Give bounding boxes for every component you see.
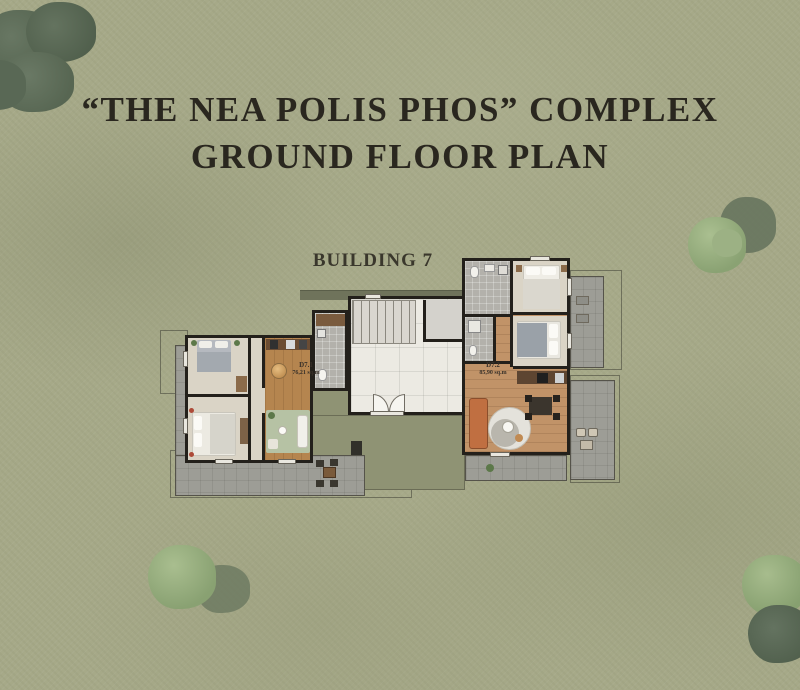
nightstand <box>561 265 567 272</box>
entry-path <box>312 388 348 418</box>
window <box>183 351 188 367</box>
toilet <box>470 266 479 278</box>
chair <box>525 395 532 402</box>
chair <box>553 395 560 402</box>
blanket <box>210 414 235 454</box>
shower <box>468 320 481 333</box>
terrace-bottom-right <box>465 455 567 481</box>
appliance-oven <box>270 340 278 349</box>
outdoor-chair <box>316 460 324 467</box>
window <box>567 333 572 349</box>
coffee-table <box>502 421 514 433</box>
window <box>365 294 381 299</box>
nightstand <box>516 265 522 272</box>
sink <box>484 264 495 272</box>
floor-plan: D7.1 76,21 sq.m <box>160 248 652 502</box>
outdoor-table <box>580 440 593 450</box>
tree-bottom-left <box>140 533 255 618</box>
outdoor-chair <box>576 428 586 437</box>
pillow <box>526 267 540 275</box>
staircase <box>352 300 416 344</box>
armchair <box>268 439 278 449</box>
page-title-line1: “THE NEA POLIS PHOS” COMPLEX <box>0 86 800 133</box>
page-title-line2: GROUND FLOOR PLAN <box>0 133 800 180</box>
plant <box>486 464 494 472</box>
unit-d72-label: D7.2 85,90 sq.m <box>470 361 516 377</box>
sink <box>286 340 295 349</box>
stool <box>515 434 523 442</box>
cooktop <box>537 373 548 383</box>
outdoor-chair <box>330 480 338 487</box>
unit-id: D7.2 <box>470 361 516 370</box>
plant <box>191 340 197 346</box>
lamp <box>189 408 194 413</box>
pillow <box>194 433 202 447</box>
coffee-table <box>278 426 287 435</box>
unit-area: 76,21 sq.m <box>283 370 329 378</box>
tree-canopy <box>148 545 216 609</box>
outdoor-table <box>323 467 336 478</box>
pillow <box>549 341 558 355</box>
terrace-unit <box>576 296 589 305</box>
pillow <box>199 341 212 348</box>
appliance-fridge <box>299 340 307 349</box>
window <box>567 278 572 296</box>
chair <box>553 413 560 420</box>
unit-d72 <box>462 258 570 455</box>
lamp <box>189 452 194 457</box>
unit-d71-label: D7.1 76,21 sq.m <box>283 361 329 377</box>
unit-area: 85,90 sq.m <box>470 370 516 378</box>
blanket <box>523 279 560 309</box>
pillow <box>194 416 202 430</box>
sink <box>555 373 564 383</box>
window <box>183 418 188 434</box>
interior-wall <box>465 314 510 317</box>
plant <box>234 340 240 346</box>
window <box>490 452 510 457</box>
interior-wall <box>513 312 567 315</box>
sofa <box>297 415 308 448</box>
pillow <box>549 324 558 338</box>
site-plan-scene: “THE NEA POLIS PHOS” COMPLEX GROUND FLOO… <box>0 0 800 690</box>
entrance-door-leaf <box>373 394 389 412</box>
room-laundry-wc <box>312 310 348 391</box>
window <box>278 459 296 464</box>
storage-room <box>423 300 462 342</box>
washing-machine <box>498 265 508 275</box>
tree-top-right <box>680 193 775 278</box>
blanket <box>197 352 231 372</box>
outdoor-chair <box>316 480 324 487</box>
toilet <box>469 345 477 356</box>
blanket <box>517 323 547 357</box>
window <box>530 256 550 261</box>
stair-core-hall <box>348 296 465 415</box>
outdoor-chair <box>330 459 338 466</box>
chair <box>525 413 532 420</box>
wardrobe <box>236 376 247 392</box>
pillow <box>542 267 556 275</box>
cabinet <box>316 314 345 326</box>
page-title: “THE NEA POLIS PHOS” COMPLEX GROUND FLOO… <box>0 86 800 180</box>
door-mat <box>351 441 362 456</box>
unit-id: D7.1 <box>283 361 329 370</box>
washing-machine <box>317 329 326 338</box>
unit-d71 <box>185 335 313 463</box>
tree-canopy <box>748 605 800 663</box>
outdoor-chair <box>588 428 598 437</box>
entrance-opening <box>370 411 404 416</box>
dining-table <box>529 397 552 415</box>
tree-bottom-right <box>718 543 800 663</box>
interior-wall <box>493 317 496 361</box>
interior-wall <box>188 394 248 397</box>
dresser <box>240 418 248 444</box>
pillow <box>215 341 228 348</box>
terrace-unit <box>576 314 589 323</box>
entrance-door-leaf <box>389 394 405 412</box>
interior-wall <box>248 338 251 460</box>
tree-canopy <box>712 229 742 257</box>
interior-wall <box>513 366 567 369</box>
sofa <box>469 398 488 449</box>
plant <box>268 412 275 419</box>
window <box>215 459 233 464</box>
